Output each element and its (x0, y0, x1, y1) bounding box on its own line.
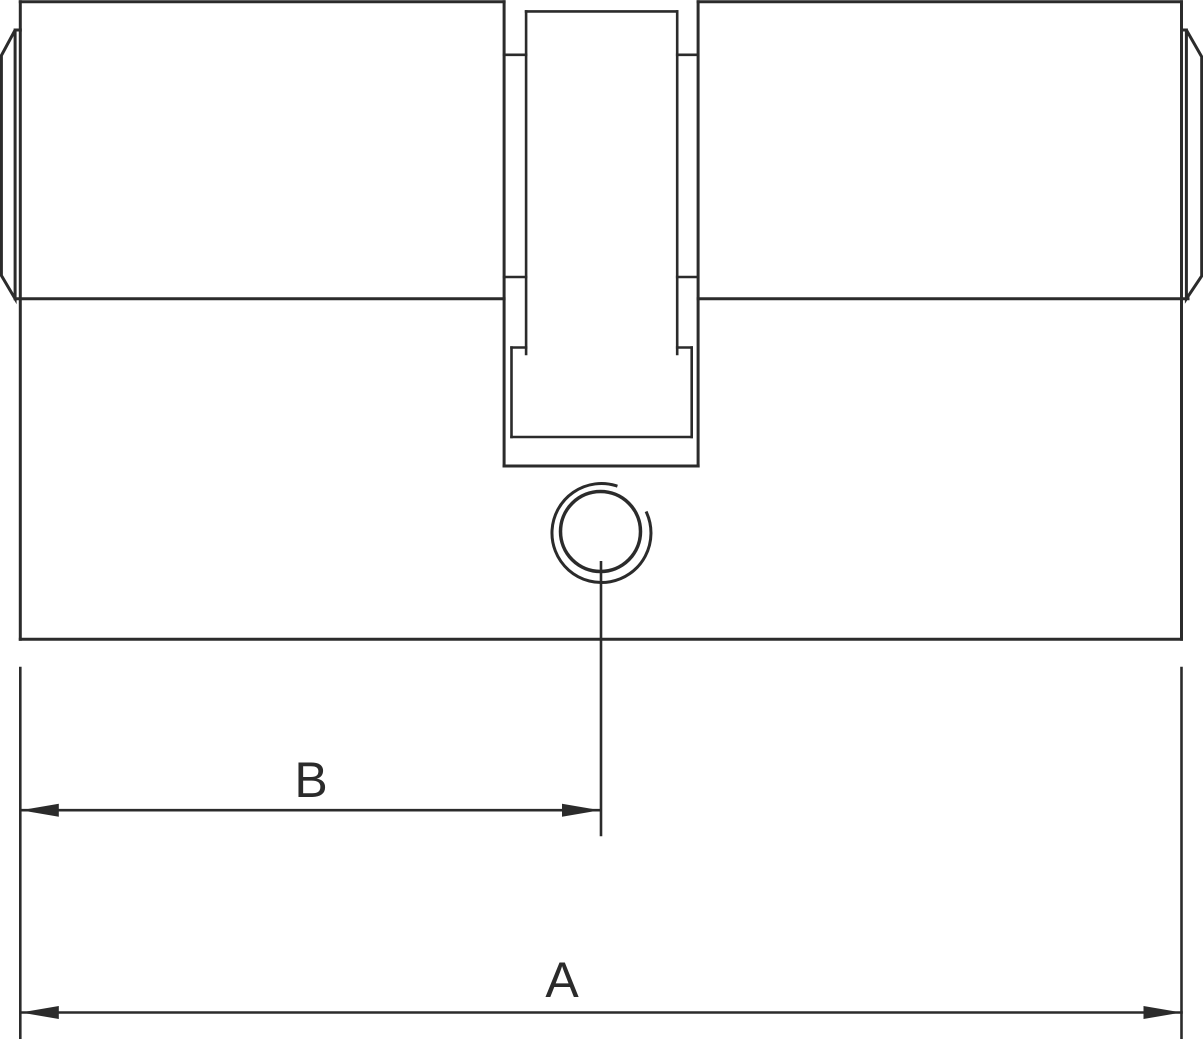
svg-text:B: B (294, 752, 327, 808)
svg-text:A: A (545, 952, 579, 1008)
